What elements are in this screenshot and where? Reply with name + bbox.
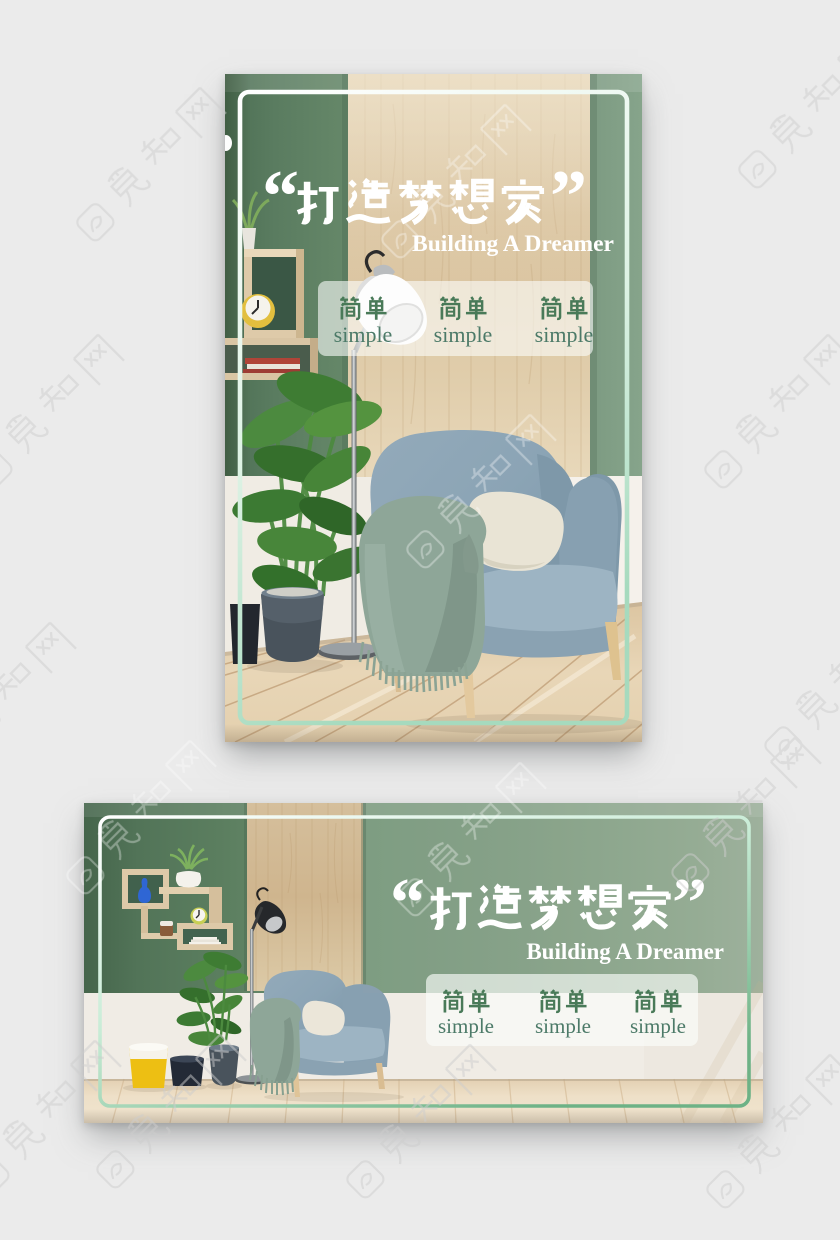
svg-text:simple: simple — [434, 322, 493, 347]
svg-text:Building A Dreamer: Building A Dreamer — [526, 939, 724, 964]
svg-text:simple: simple — [535, 322, 594, 347]
svg-text:simple: simple — [438, 1014, 494, 1038]
svg-text:”: ” — [672, 865, 707, 942]
svg-text:“: “ — [390, 865, 425, 942]
svg-text:simple: simple — [334, 322, 393, 347]
svg-text:“: “ — [262, 156, 299, 238]
svg-text:”: ” — [550, 156, 587, 238]
svg-text:Building A Dreamer: Building A Dreamer — [412, 231, 614, 257]
svg-text:simple: simple — [535, 1014, 591, 1038]
svg-text:simple: simple — [630, 1014, 686, 1038]
